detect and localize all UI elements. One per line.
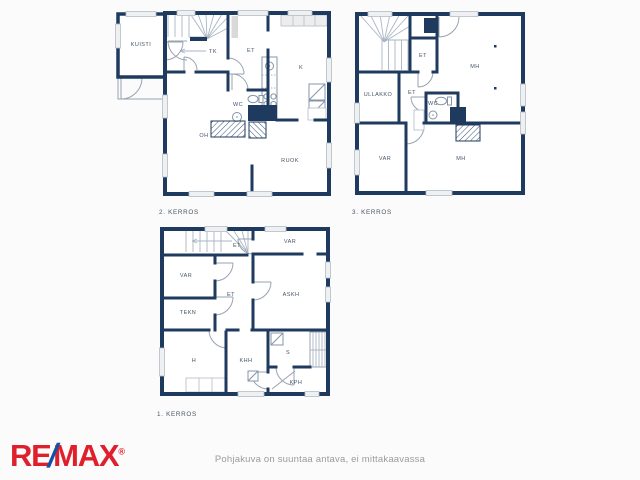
room-label-tekn: TEKN: [180, 310, 196, 316]
floor3-chimney-hatch: [456, 125, 480, 141]
room-label-wc-2nd: WC: [233, 102, 243, 108]
room-label-et-top-1st: ET: [233, 243, 241, 249]
room-label-kuisti: KUISTI: [131, 42, 151, 48]
floor2-porch-outline: [118, 77, 165, 99]
room-label-et-hall-3rd: ET: [419, 53, 427, 59]
room-label-et-1st: ET: [227, 292, 235, 298]
room-label-mh-bottom: MH: [456, 156, 465, 162]
floor-label-2nd: 2. KERROS: [159, 209, 199, 216]
room-label-oh: OH: [199, 133, 208, 139]
room-label-var-3rd: VAR: [379, 156, 391, 162]
floor2-chimney-hatch: [211, 121, 266, 138]
disclaimer-text: Pohjakuva on suuntaa antava, ei mittakaa…: [0, 454, 640, 465]
room-label-s: S: [286, 350, 290, 356]
room-label-khh: KHH: [240, 358, 253, 364]
room-label-h: H: [192, 358, 196, 364]
floor-plan-1st-floor: ET VAR VAR TEKN ET ASKH H KHH S KPH 1. K…: [157, 227, 331, 419]
room-label-ullakko: ULLAKKO: [364, 92, 393, 98]
room-label-wc-3rd: WC: [428, 101, 438, 107]
floorplan-page: KUISTI TK ET K WC OH RUOK 2. KERROS: [0, 0, 640, 480]
room-label-ruok: RUOK: [281, 158, 299, 164]
room-label-var-1st: VAR: [180, 273, 192, 279]
room-label-var-top-1st: VAR: [284, 239, 296, 245]
room-label-askh: ASKH: [283, 292, 300, 298]
room-label-mh-top: MH: [470, 64, 479, 70]
floorplans-drawing: KUISTI TK ET K WC OH RUOK 2. KERROS: [0, 0, 640, 480]
room-label-kph: KPH: [290, 380, 303, 386]
floor-label-3rd: 3. KERROS: [352, 209, 392, 216]
room-label-tk: TK: [209, 49, 217, 55]
room-label-k: K: [299, 65, 303, 71]
floor-plan-2nd-floor: KUISTI TK ET K WC OH RUOK 2. KERROS: [116, 11, 332, 217]
floor2-rooms-fill: [118, 13, 329, 194]
room-label-et-2nd: ET: [247, 48, 255, 54]
floor-plan-3rd-floor: ET ULLAKKO ET WC MH VAR MH 3. KERROS: [352, 12, 526, 217]
floor-label-1st: 1. KERROS: [157, 411, 197, 418]
room-label-et-3rd: ET: [408, 90, 416, 96]
